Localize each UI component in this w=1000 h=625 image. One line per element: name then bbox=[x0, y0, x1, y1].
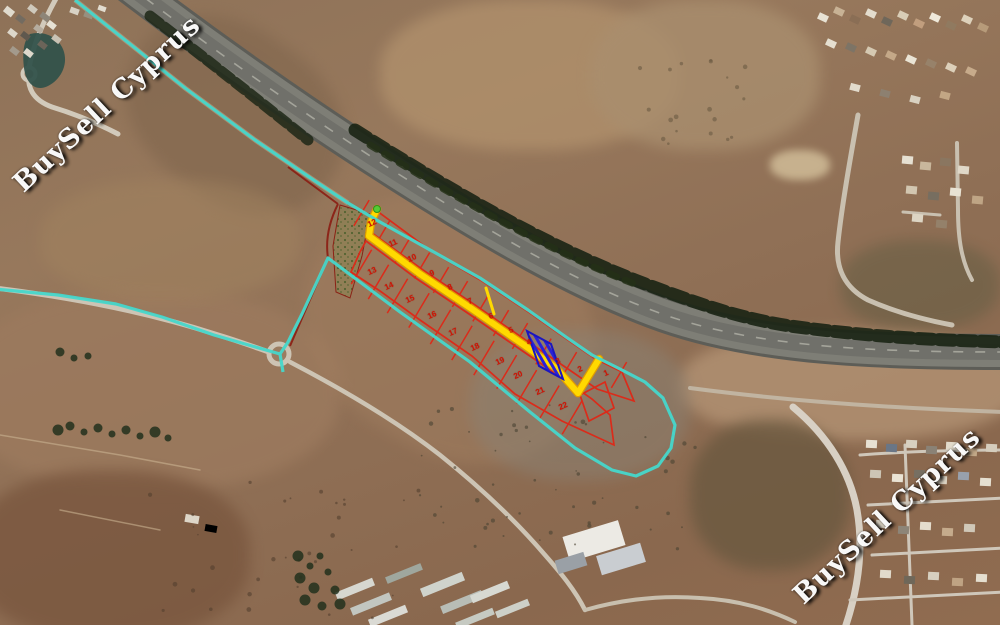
tree-clusters bbox=[53, 348, 346, 611]
satellite-map: 12111098765432113141516171819202122 BuyS… bbox=[0, 0, 1000, 625]
entrance-marker bbox=[374, 206, 381, 213]
